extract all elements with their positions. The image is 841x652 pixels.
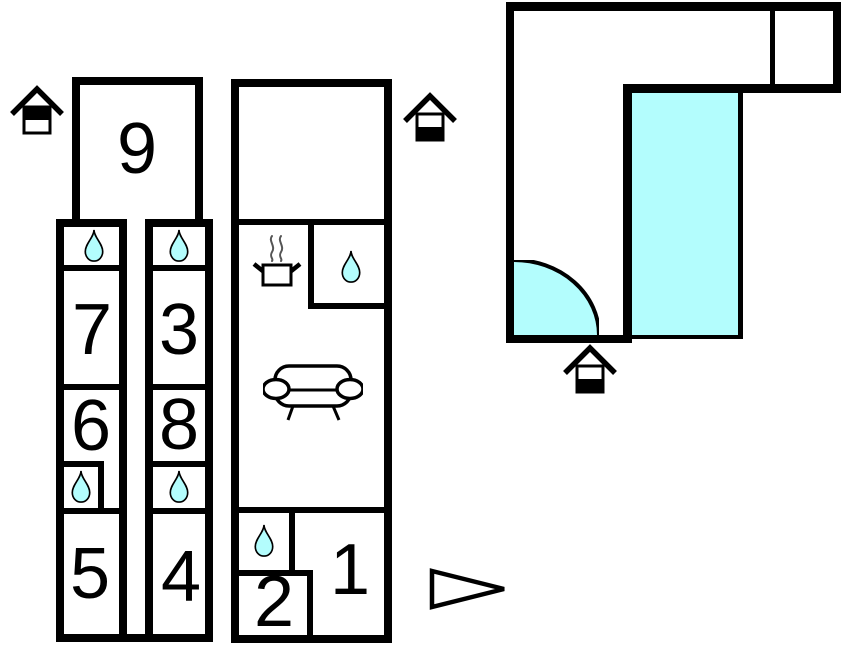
water-drop-icon [83,229,105,262]
entrance-ground-floor-icon [562,344,618,396]
wall [119,219,127,642]
room-label-8: 8 [159,389,199,461]
room-label-3: 3 [159,294,199,366]
water-drop-icon [252,524,276,557]
cooking-pot-icon [250,232,304,290]
wall [623,84,632,343]
wall [56,219,127,227]
wall [153,265,205,271]
wall [72,77,80,227]
terrace-area [632,93,743,339]
wall [64,265,119,271]
wall [56,634,213,642]
water-drop-icon [70,470,92,503]
wall [308,303,384,309]
wall [195,77,203,227]
water-drop-icon [168,470,190,503]
entrance-upper-floor-icon [9,85,65,137]
room-label-5: 5 [70,538,110,610]
wall [506,2,841,11]
wall [308,219,314,309]
wall [72,77,203,85]
wall [98,461,104,514]
wall [384,79,392,643]
wall [506,2,514,343]
entrance-ground-floor-icon [402,92,458,144]
room-label-2: 2 [254,566,294,638]
floor-plan: 9 7 3 6 8 5 4 [0,0,841,652]
wall [145,219,153,642]
room-label-1: 1 [330,534,370,606]
sofa-icon [263,361,363,423]
wall [64,508,119,514]
wall [239,507,384,513]
room-label-6: 6 [71,390,111,462]
wall [307,570,313,635]
wall [231,79,239,643]
room-label-9: 9 [117,113,157,185]
wall [153,508,205,514]
direction-arrow-icon [429,568,509,610]
room-label-4: 4 [161,541,201,613]
wall [145,219,213,227]
water-drop-icon [168,229,190,262]
wall [231,79,392,87]
wall [623,84,841,93]
door-swing-icon [514,260,599,335]
room-label-7: 7 [72,294,112,366]
wall [205,219,213,642]
wall [833,2,841,93]
wall [56,219,64,642]
wall [770,11,775,84]
water-drop-icon [340,250,362,283]
wall [506,335,632,343]
